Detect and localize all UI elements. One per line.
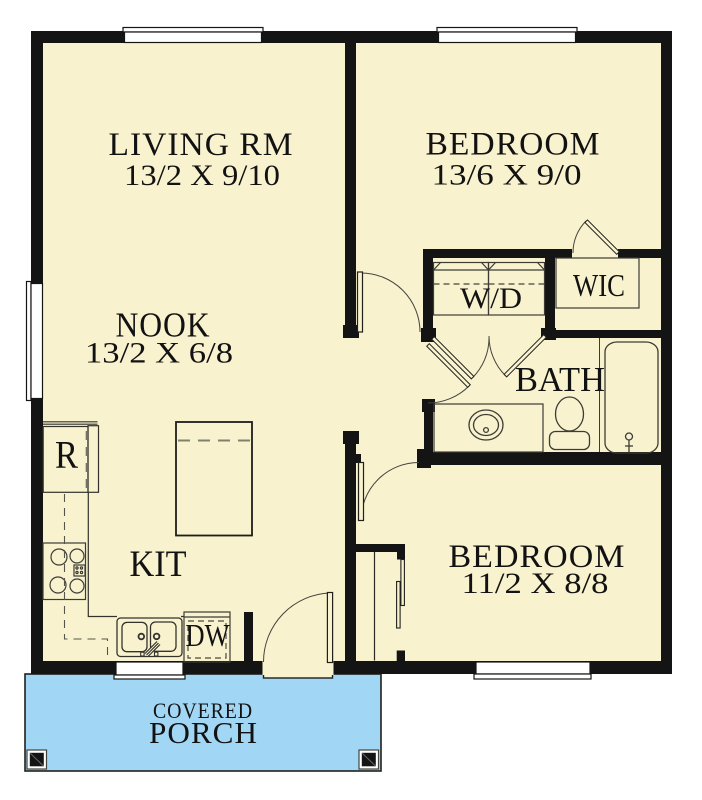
svg-text:PORCH: PORCH [149, 715, 258, 750]
svg-text:BATH: BATH [515, 360, 605, 399]
svg-text:W/D: W/D [460, 282, 522, 315]
svg-text:KIT: KIT [130, 544, 187, 585]
svg-text:BEDROOM: BEDROOM [426, 127, 601, 163]
svg-text:WIC: WIC [573, 267, 625, 303]
svg-text:DW: DW [186, 617, 231, 653]
svg-text:LIVING RM: LIVING RM [109, 127, 294, 163]
svg-text:11/2 X 8/8: 11/2 X 8/8 [462, 567, 609, 600]
svg-text:R: R [55, 434, 78, 477]
svg-text:13/6 X 9/0: 13/6 X 9/0 [432, 159, 582, 192]
svg-text:13/2 X 9/10: 13/2 X 9/10 [124, 159, 280, 192]
svg-text:13/2 X 6/8: 13/2 X 6/8 [85, 337, 233, 370]
